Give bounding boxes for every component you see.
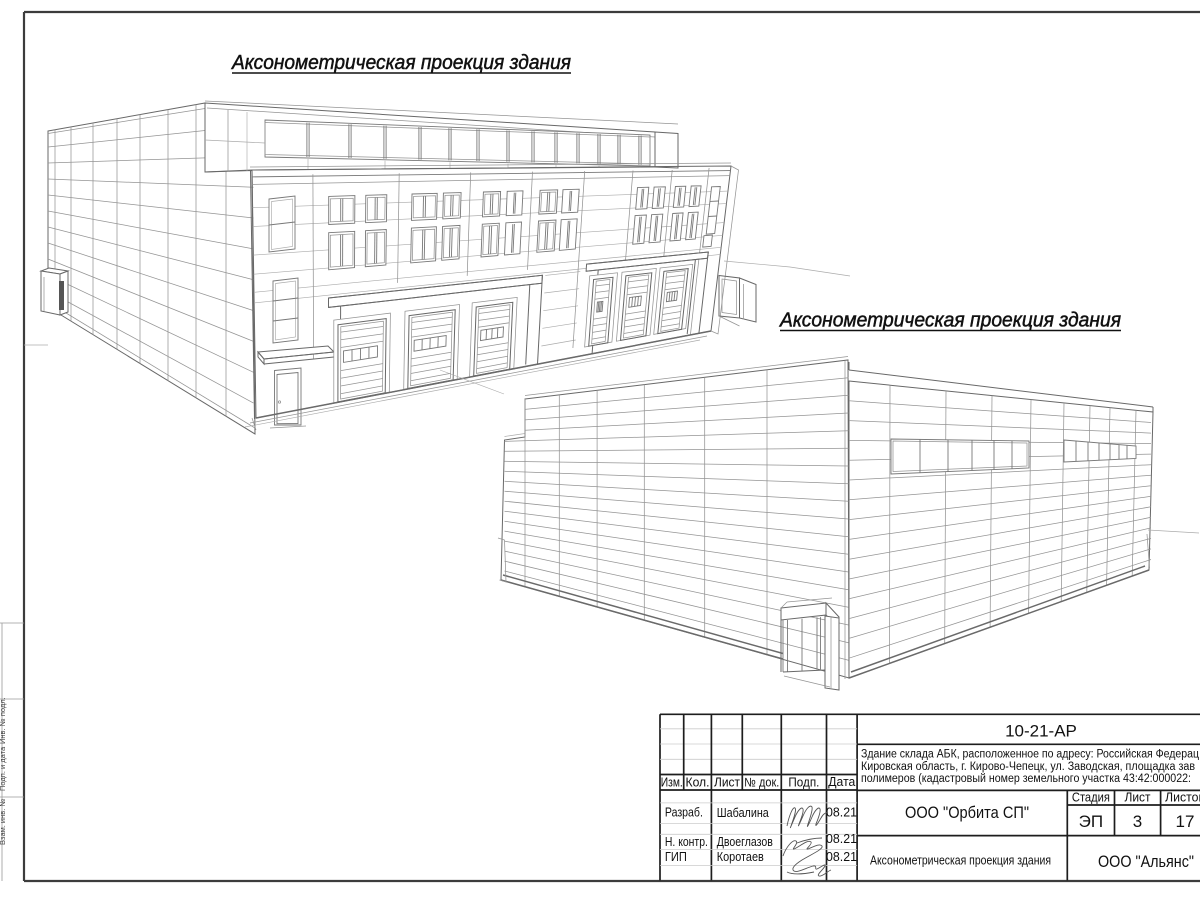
svg-text:Кол.: Кол. [686, 776, 710, 790]
svg-text:Аксонометрическая проекция зда: Аксонометрическая проекция здания [779, 310, 1121, 332]
svg-text:Лист: Лист [714, 776, 740, 790]
svg-text:Стадия: Стадия [1072, 791, 1110, 805]
svg-text:Коротаев: Коротаев [717, 850, 764, 864]
svg-text:Здание склада АБК, расположенн: Здание склада АБК, расположенное по адре… [861, 749, 1199, 761]
svg-text:Кировская область, г. Кирово-Ч: Кировская область, г. Кирово-Чепецк, ул.… [861, 761, 1195, 773]
svg-text:Листов: Листов [1165, 791, 1200, 805]
svg-text:08.21: 08.21 [826, 850, 857, 864]
svg-text:Взам. инв. №: Взам. инв. № [0, 799, 7, 845]
svg-text:Дата: Дата [828, 775, 855, 789]
svg-text:Разраб.: Разраб. [665, 806, 703, 820]
svg-text:3: 3 [1133, 812, 1142, 831]
svg-text:Двоеглазов: Двоеглазов [717, 835, 773, 849]
svg-text:ЭП: ЭП [1079, 812, 1103, 831]
svg-text:№ док.: № док. [744, 776, 779, 790]
svg-text:Подп. и дата: Подп. и дата [0, 746, 7, 791]
svg-text:Аксонометрическая проекция зда: Аксонометрическая проекция здания [231, 52, 571, 74]
svg-text:ООО "Альянс": ООО "Альянс" [1098, 852, 1194, 871]
svg-text:Изм.: Изм. [661, 776, 683, 790]
svg-text:ГИП: ГИП [665, 850, 687, 864]
svg-text:Н. контр.: Н. контр. [665, 835, 708, 849]
svg-text:Шабалина: Шабалина [717, 806, 769, 820]
svg-text:Аксонометрическая проекция зда: Аксонометрическая проекция здания [870, 854, 1051, 868]
svg-text:ООО "Орбита СП": ООО "Орбита СП" [905, 803, 1029, 822]
svg-text:08.21: 08.21 [826, 806, 857, 820]
svg-text:Подп.: Подп. [788, 776, 819, 790]
svg-text:Инв. № подл.: Инв. № подл. [0, 697, 7, 744]
svg-text:08.21: 08.21 [826, 832, 857, 846]
svg-text:10-21-АР: 10-21-АР [1005, 722, 1077, 741]
svg-text:17: 17 [1176, 812, 1195, 831]
svg-text:Лист: Лист [1125, 791, 1151, 805]
svg-text:полимеров (кадастровый номер з: полимеров (кадастровый номер земельного … [861, 773, 1191, 785]
